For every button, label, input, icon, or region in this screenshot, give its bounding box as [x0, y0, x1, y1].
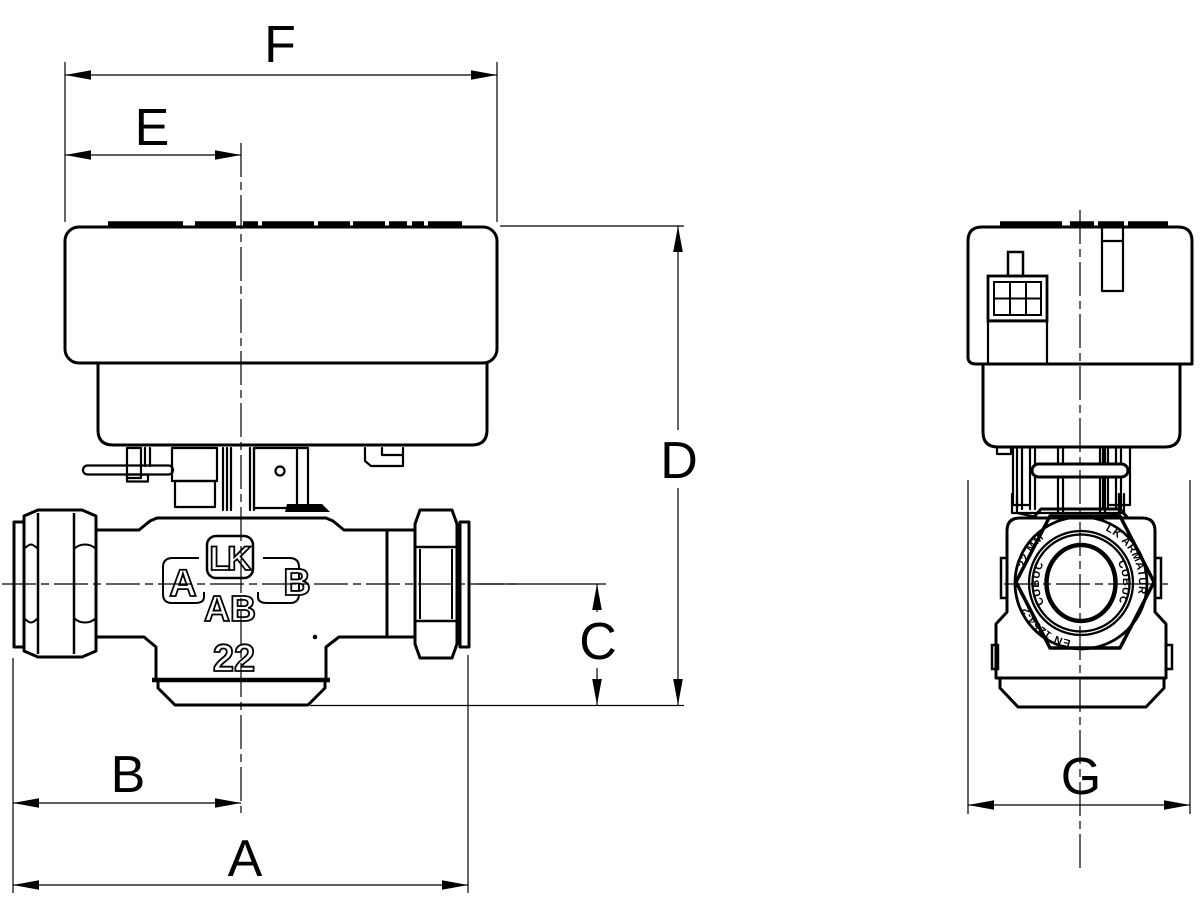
valve-body-bottom	[96, 637, 415, 680]
dim-label-C: C	[579, 613, 617, 671]
port-b-label: B	[283, 562, 310, 604]
dimension-D: D	[310, 226, 698, 706]
actuator-base	[98, 363, 487, 445]
cable-slot	[1102, 228, 1123, 291]
dim-label-G: G	[1061, 748, 1101, 806]
dim-label-D: D	[660, 432, 698, 490]
drawing-page: LK A B AB 22	[0, 0, 1200, 902]
valve-bottom-boss-side	[1000, 678, 1164, 707]
actuator-cover	[65, 224, 497, 445]
valve-body-top	[96, 518, 415, 530]
front-view: LK A B AB 22	[2, 143, 521, 813]
connector-block	[988, 252, 1047, 321]
connector-tab	[365, 448, 403, 466]
actuator-stem-mechanism	[83, 448, 403, 512]
dimension-C: C	[478, 584, 617, 705]
dim-label-F: F	[264, 16, 296, 74]
dimension-B: B	[13, 658, 241, 893]
dim-label-B: B	[111, 746, 146, 804]
valve-body-side: 22 MM LK ARMATUR EN 1254-2 CUBUC CUBUC	[992, 509, 1172, 707]
actuator-base-side	[983, 364, 1180, 447]
dimension-E: E	[65, 99, 241, 160]
pipe-opening	[1047, 545, 1116, 621]
dim-label-A: A	[228, 830, 263, 888]
port-ab-label: AB	[204, 588, 256, 629]
valve-stem	[223, 448, 254, 510]
size-label: 22	[213, 638, 255, 680]
lk-logo: LK	[209, 540, 252, 578]
dimension-F: F	[65, 16, 497, 222]
valve-engravings: LK A B AB 22	[163, 536, 311, 680]
stem-screw	[276, 467, 285, 476]
valve-drawing: LK A B AB 22	[0, 0, 1200, 902]
body-dot	[313, 635, 318, 640]
stem-mechanism-side	[997, 447, 1130, 517]
dim-label-E: E	[135, 99, 170, 157]
